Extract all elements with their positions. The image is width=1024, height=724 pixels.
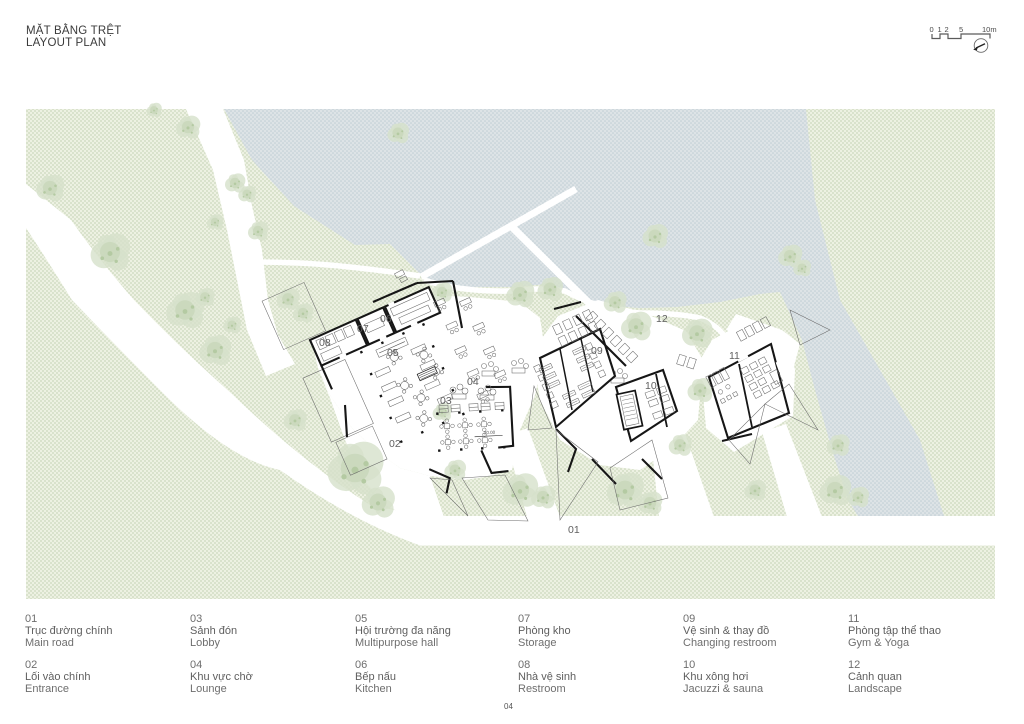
svg-text:10: 10: [645, 380, 657, 392]
svg-text:01: 01: [568, 524, 580, 536]
svg-text:04: 04: [467, 376, 479, 388]
svg-text:2: 2: [945, 25, 949, 34]
svg-text:12: 12: [656, 313, 668, 325]
svg-text:07: 07: [357, 323, 369, 335]
svg-text:0: 0: [930, 25, 934, 34]
svg-text:08: 08: [319, 337, 331, 349]
svg-text:10m: 10m: [982, 25, 997, 34]
svg-text:03: 03: [440, 395, 452, 407]
svg-text:05: 05: [387, 347, 399, 359]
svg-text:02: 02: [389, 438, 401, 450]
svg-text:09: 09: [591, 345, 603, 357]
svg-text:-20.00: -20.00: [482, 430, 496, 436]
svg-text:1: 1: [938, 25, 942, 34]
svg-text:06: 06: [380, 313, 392, 325]
svg-text:11: 11: [729, 350, 740, 362]
svg-text:5: 5: [959, 25, 963, 34]
